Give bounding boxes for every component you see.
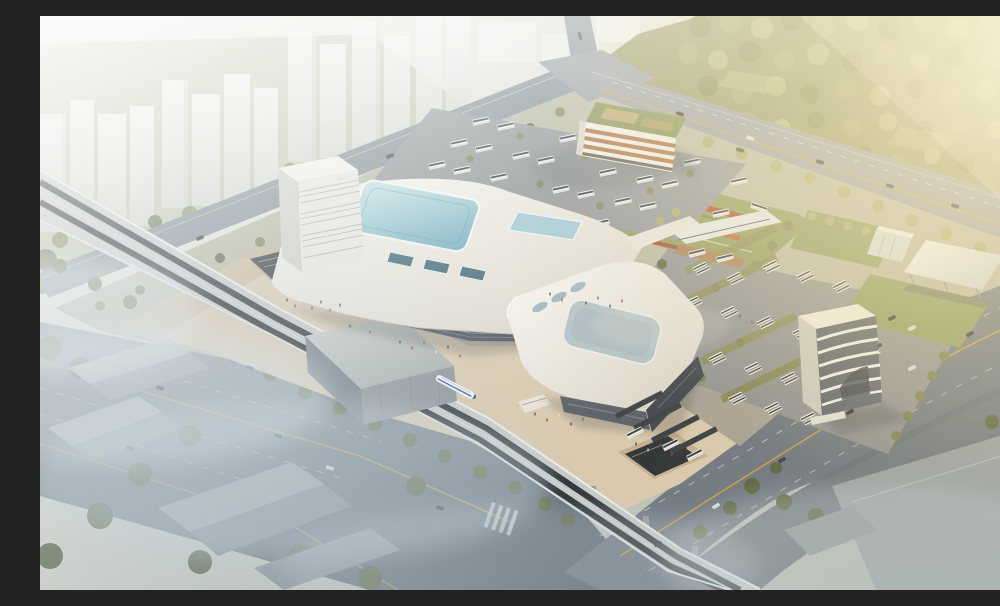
architectural-rendering [40, 16, 1000, 590]
atmosphere [40, 16, 1000, 590]
sun-glow [40, 16, 1000, 590]
rendering-canvas [40, 16, 1000, 590]
